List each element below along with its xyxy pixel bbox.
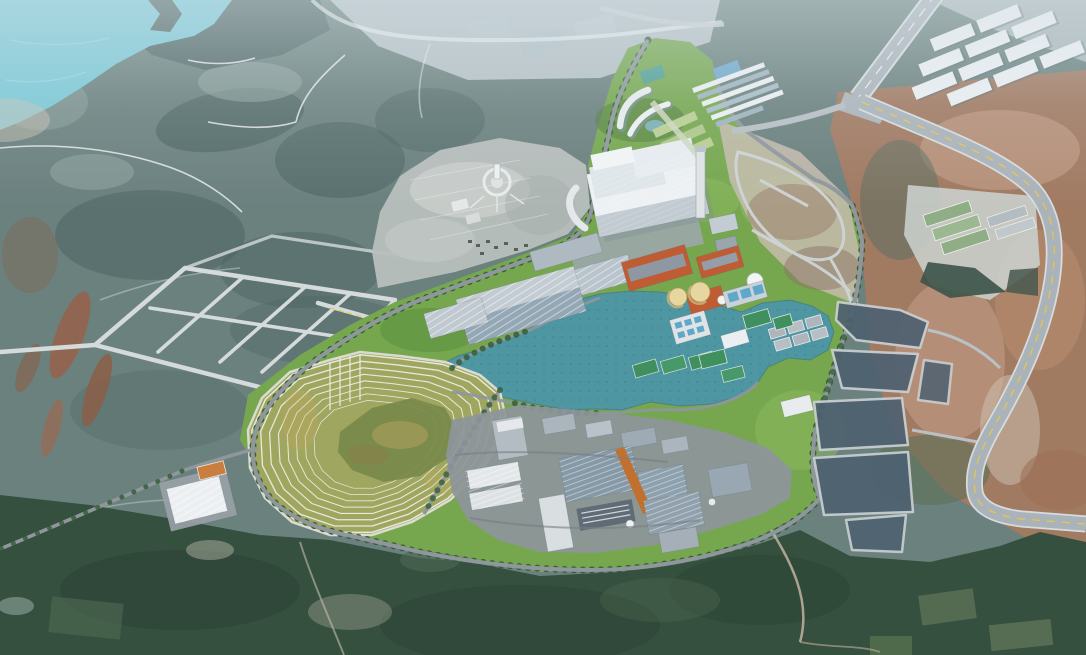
plot [832, 350, 918, 392]
plot [814, 398, 908, 450]
scene-canvas [0, 0, 1086, 655]
plot [814, 452, 913, 515]
tank [709, 499, 716, 506]
plot [918, 360, 952, 404]
atmospheric-haze [0, 0, 1086, 300]
plot [846, 515, 906, 552]
aerial-render [0, 0, 1086, 655]
